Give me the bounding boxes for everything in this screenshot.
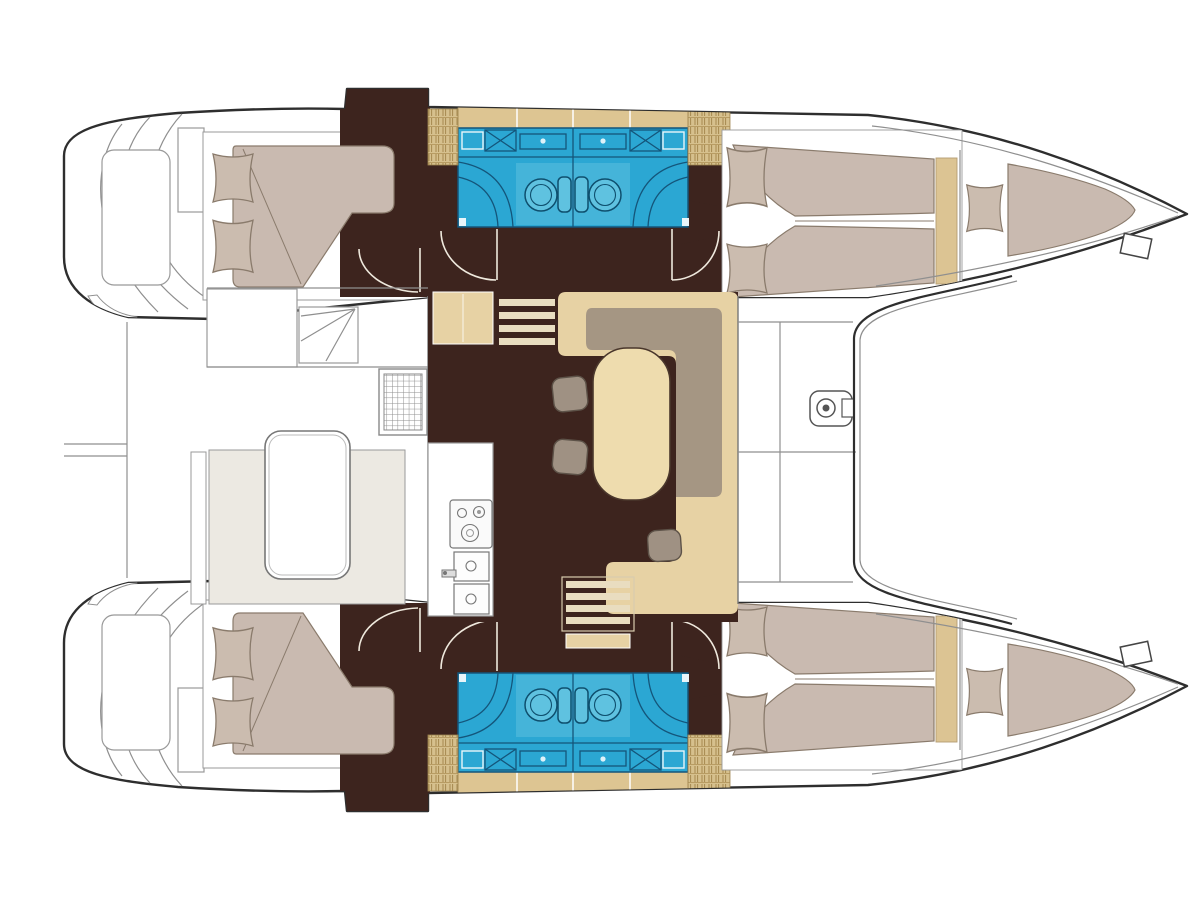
cockpit-table	[265, 431, 350, 579]
door-hinge	[682, 218, 689, 226]
pillow	[967, 185, 1003, 232]
drawer-chest	[566, 634, 630, 648]
pillow	[213, 220, 253, 272]
pillow	[727, 244, 767, 293]
faucet	[540, 138, 545, 143]
toilet	[525, 177, 571, 212]
deck-locker-lines	[738, 322, 856, 582]
galley-cabinet	[433, 292, 493, 344]
corner-steps	[299, 307, 358, 363]
aft-crossbeam	[64, 444, 127, 456]
faucet	[600, 138, 605, 143]
windlass	[810, 391, 854, 426]
pillow	[727, 148, 767, 207]
saloon	[428, 292, 738, 648]
forward-cabin	[722, 130, 962, 298]
cockpit-bench	[207, 289, 297, 367]
pillow	[213, 154, 253, 202]
deck-grate	[379, 369, 427, 435]
catamaran-floor-plan	[0, 0, 1200, 900]
trampoline-beam	[854, 276, 1012, 624]
toilet	[575, 177, 621, 212]
bathroom-block	[458, 104, 689, 227]
stool	[552, 439, 589, 476]
transom-platform	[102, 150, 170, 285]
door-hinge	[459, 218, 466, 226]
bow-cleat	[1120, 233, 1152, 258]
berth-headboard-shelf	[936, 158, 957, 284]
side-step	[191, 452, 206, 604]
boarding-step	[178, 128, 204, 212]
hanging-locker	[428, 109, 458, 165]
galley	[428, 443, 493, 616]
stool	[647, 529, 682, 562]
foredeck	[738, 276, 1017, 624]
cockpit	[64, 288, 428, 604]
stove	[450, 500, 492, 548]
floor-plan-canvas	[0, 0, 1200, 900]
stool	[551, 375, 588, 412]
forepeak-mattress	[1008, 164, 1135, 256]
dinette-table	[593, 348, 670, 500]
